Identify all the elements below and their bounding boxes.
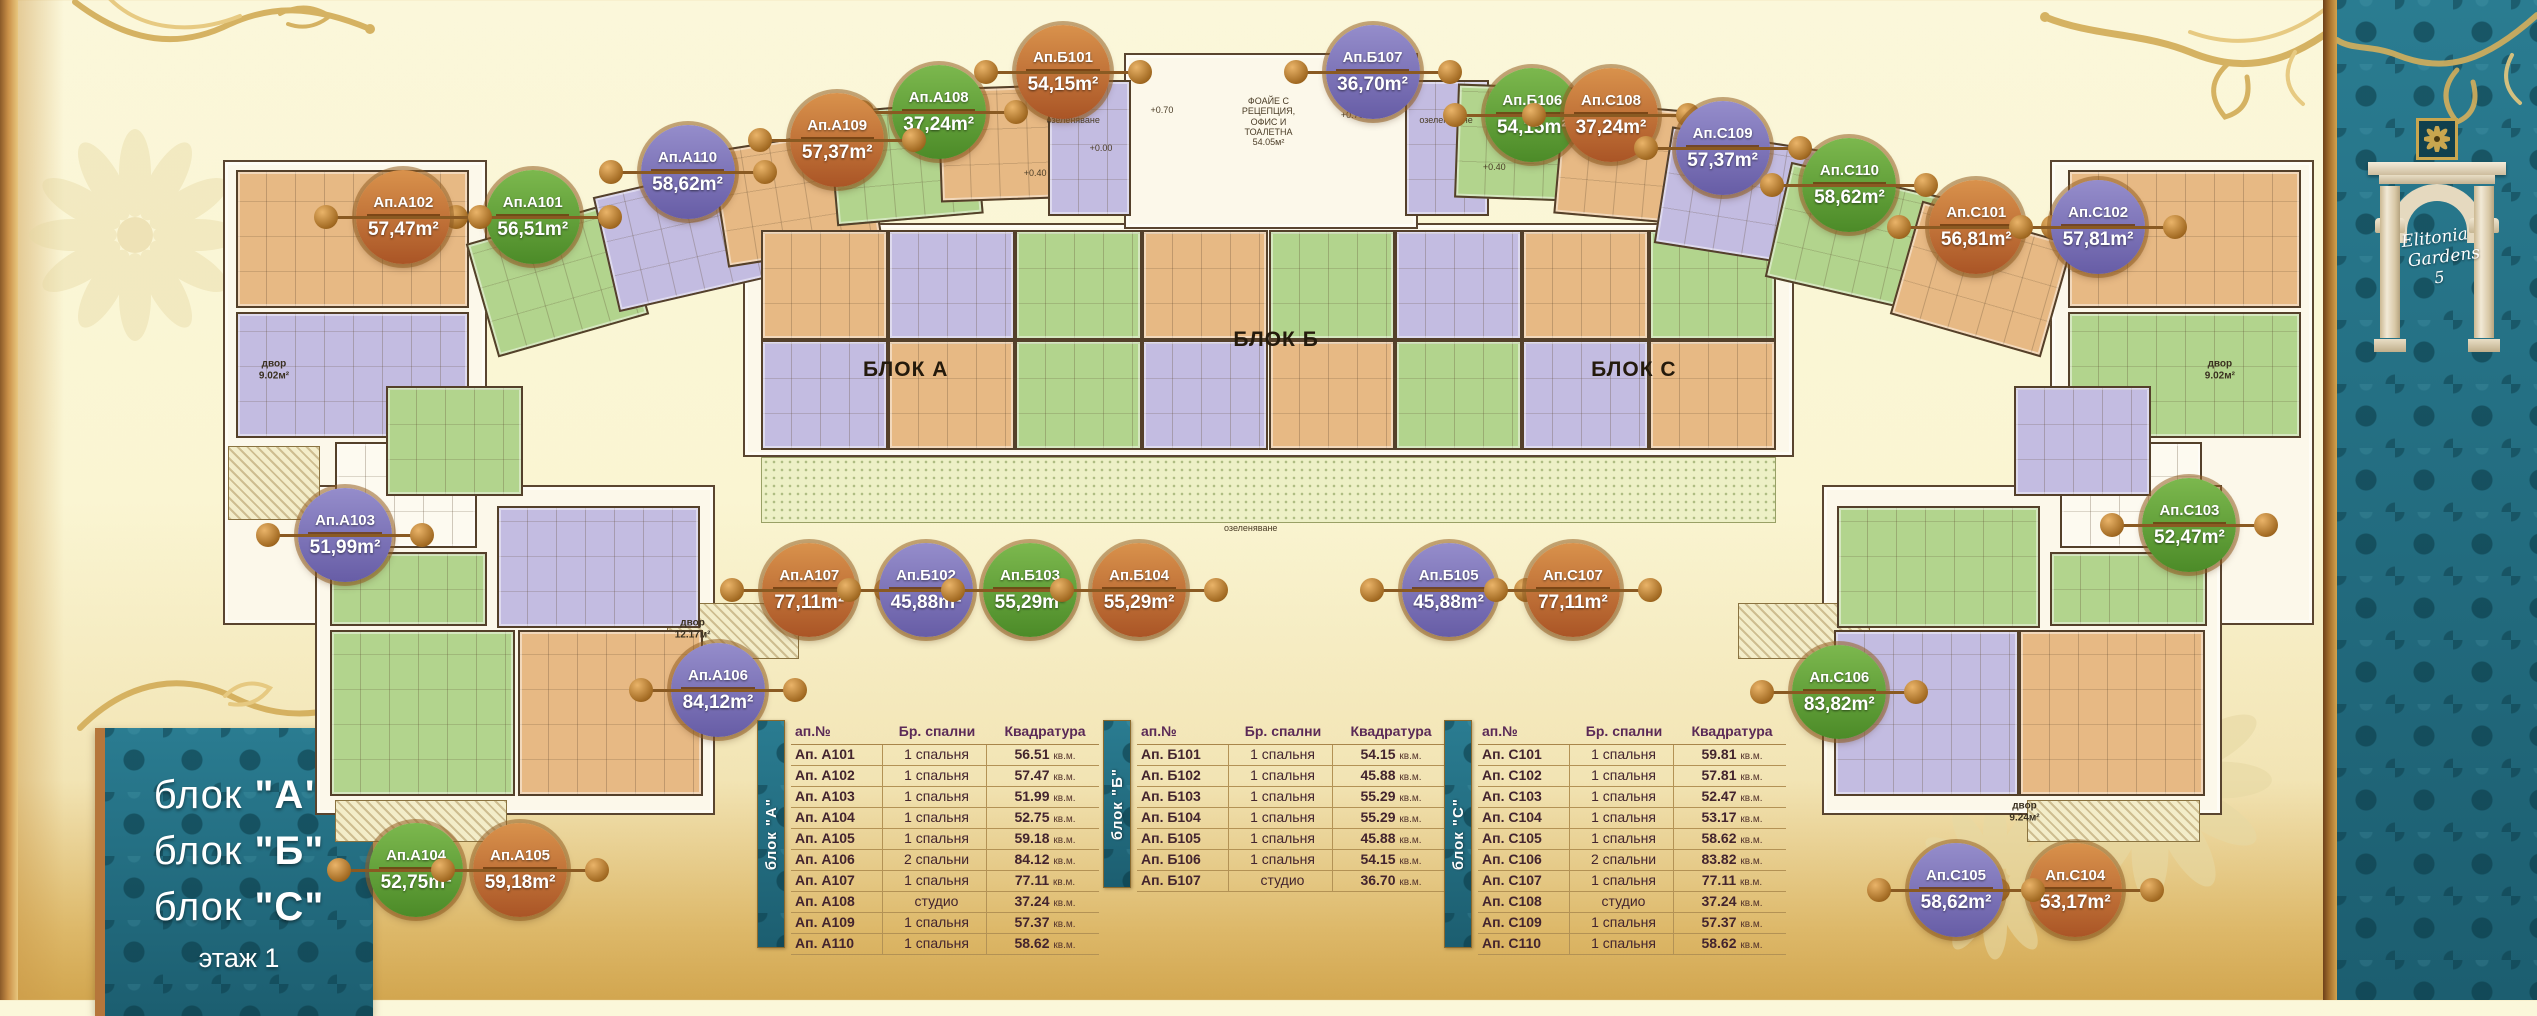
apartment-unit [1522,340,1649,450]
badge-knob-icon [1128,60,1152,84]
table-header: Квадратура [1333,720,1445,745]
table-strip: блок "А" [757,720,785,948]
apartment-badge[interactable]: Ап.Б10455,29m² [1092,543,1186,637]
area-number: 57.37 [1701,914,1740,930]
badge-divider [2153,522,2226,524]
apartment-table: ап.№Бр. спалниКвадратураАп. C1011 спальн… [1478,720,1786,955]
table-header: Бр. спални [1570,720,1674,745]
table-cell-bedrooms: 1 спальня [1229,808,1333,829]
table-cell-bedrooms: 1 спальня [883,871,987,892]
table-cell-bedrooms: 1 спальня [1229,745,1333,766]
table-cell-bedrooms: 1 спальня [1570,913,1674,934]
badge-apartment-area: 57,37m² [802,142,873,164]
area-unit: кв.м. [1399,856,1421,867]
badge-divider [496,214,569,216]
area-unit: кв.м. [1053,856,1075,867]
badge-divider [1686,145,1759,147]
table-cell-apartment: Ап. C102 [1478,766,1570,787]
badge-divider [1536,587,1609,589]
plan-label: +0.00 [1090,143,1113,153]
apartment-unit [518,630,703,796]
badge-apartment-number: Ап.C102 [2068,204,2128,221]
table-header: Бр. спални [883,720,987,745]
apartment-unit [888,230,1015,340]
badge-divider [801,137,874,139]
badge-apartment-area: 83,82m² [1804,694,1875,716]
badge-knob-icon [314,205,338,229]
plan-label: +0.40 [1024,168,1047,178]
table-cell-apartment: Ап. C109 [1478,913,1570,934]
apartment-unit [497,506,700,628]
table-cell-bedrooms: 1 спальня [1570,829,1674,850]
badge-knob-icon [585,858,609,882]
table-cell-apartment: Ап. C106 [1478,850,1570,871]
plan-label: +0.70 [1151,105,1174,115]
badge-apartment-number: Ап.А105 [490,847,550,864]
area-number: 53.17 [1701,809,1740,825]
area-number: 36.70 [1360,872,1399,888]
area-unit: кв.м. [1053,751,1075,762]
table-cell-apartment: Ап. А104 [791,808,883,829]
table-header: ап.№ [1137,720,1229,745]
badge-divider [2039,887,2112,889]
table-strip-label: блок "А" [763,798,780,870]
apartment-badge[interactable]: Ап.C10257,81m² [2051,180,2145,274]
apartment-unit [1269,230,1396,340]
badge-apartment-number: Ап.Б105 [1419,567,1479,584]
area-unit: кв.м. [1740,898,1762,909]
badge-apartment-number: Ап.А101 [503,194,563,211]
area-unit: кв.м. [1740,940,1762,951]
table-cell-bedrooms: 1 спальня [1229,766,1333,787]
badge-knob-icon [410,523,434,547]
badge-divider [902,109,975,111]
table-cell-bedrooms: 1 спальня [1570,934,1674,955]
badge-knob-icon [1204,578,1228,602]
badge-divider [2061,224,2134,226]
area-number: 45.88 [1360,767,1399,783]
badge-apartment-area: 57,47m² [368,219,439,241]
badge-knob-icon [1867,878,1891,902]
badge-knob-icon [468,205,492,229]
badge-knob-icon [753,160,777,184]
badge-apartment-number: Ап.А103 [315,512,375,529]
badge-knob-icon [327,858,351,882]
apartment-unit [888,340,1015,450]
badge-divider [1026,69,1099,71]
badge-knob-icon [598,205,622,229]
badge-knob-icon [1887,215,1911,239]
badge-apartment-number: Ап.C107 [1543,567,1603,584]
area-number: 83.82 [1701,851,1740,867]
badge-apartment-number: Ап.C104 [2045,867,2105,884]
area-number: 51.99 [1014,788,1053,804]
badge-knob-icon [1788,136,1812,160]
apartment-unit [761,230,888,340]
badge-apartment-area: 57,37m² [1687,150,1758,172]
table-cell-bedrooms: студио [1570,892,1674,913]
area-number: 55.29 [1360,809,1399,825]
badge-divider [1803,689,1876,691]
apartment-badge[interactable]: Ап.Б10736,70m² [1326,25,1420,119]
area-number: 37.24 [1701,893,1740,909]
apartment-unit [1269,340,1396,450]
badge-apartment-area: 51,99m² [310,537,381,559]
right-panel-separator [2323,0,2337,1000]
badge-divider [681,687,754,689]
flower-emblem-icon [2416,118,2458,160]
table-cell-area: 55.29 кв.м. [1333,787,1445,808]
badge-divider [1336,69,1409,71]
apartment-unit [1649,340,1776,450]
badge-knob-icon [1438,60,1462,84]
apartment-badge[interactable]: Ап.А10156,51m² [486,170,580,264]
badge-apartment-number: Ап.C103 [2159,502,2219,519]
badge-knob-icon [783,678,807,702]
area-unit: кв.м. [1053,835,1075,846]
badge-divider [483,867,556,869]
area-number: 58.62 [1701,935,1740,951]
badge-apartment-area: 59,18m² [485,872,556,894]
area-unit: кв.м. [1053,898,1075,909]
apartment-unit [330,630,515,796]
table-cell-apartment: Ап. C101 [1478,745,1570,766]
badge-apartment-area: 36,70m² [1337,74,1408,96]
apartment-unit [1015,340,1142,450]
table-cell-apartment: Ап. А101 [791,745,883,766]
badge-apartment-number: Ап.А106 [688,667,748,684]
apartment-unit [2014,386,2151,496]
table-strip: блок "С" [1444,720,1472,948]
badge-apartment-number: Ап.Б107 [1343,49,1403,66]
table-cell-bedrooms: 1 спальня [1229,850,1333,871]
table-cell-area: 77.11 кв.м. [1674,871,1786,892]
badge-divider [1574,112,1647,114]
table-cell-bedrooms: студио [883,892,987,913]
badge-apartment-area: 56,81m² [1941,229,2012,251]
floor-label: этаж 1 [105,943,373,974]
badge-divider [1919,887,1992,889]
badge-knob-icon [1484,578,1508,602]
table-header: Квадратура [987,720,1099,745]
plan-label: БЛОК А [863,358,948,382]
badge-apartment-area: 58,62m² [652,174,723,196]
badge-divider [1813,182,1886,184]
apartment-badge[interactable]: Ап.А10684,12m² [671,643,765,737]
table-cell-apartment: Ап. C107 [1478,871,1570,892]
table-cell-area: 58.62 кв.м. [1674,934,1786,955]
area-number: 52.75 [1014,809,1053,825]
badge-apartment-number: Ап.А109 [807,117,867,134]
area-unit: кв.м. [1740,877,1762,888]
badge-divider [1102,587,1175,589]
apartment-badge[interactable]: Ап.А10559,18m² [473,823,567,917]
badge-knob-icon [629,678,653,702]
badge-knob-icon [974,60,998,84]
badge-apartment-area: 55,29m² [1104,592,1175,614]
badge-knob-icon [1750,680,1774,704]
badge-knob-icon [2100,513,2124,537]
apartment-unit [1142,340,1269,450]
table-cell-bedrooms: 1 спальня [883,913,987,934]
apartment-unit [1522,230,1649,340]
table-cell-apartment: Ап. Б104 [1137,808,1229,829]
badge-divider [1412,587,1485,589]
area-number: 58.62 [1014,935,1053,951]
table-cell-apartment: Ап. А103 [791,787,883,808]
area-unit: кв.м. [1053,877,1075,888]
apartment-unit [2019,630,2204,796]
badge-knob-icon [431,858,455,882]
badge-knob-icon [1360,578,1384,602]
badge-apartment-area: 84,12m² [683,692,754,714]
area-unit: кв.м. [1740,835,1762,846]
table-cell-apartment: Ап. А107 [791,871,883,892]
table-cell-area: 36.70 кв.м. [1333,871,1445,892]
area-number: 59.18 [1014,830,1053,846]
area-number: 52.47 [1701,788,1740,804]
badge-apartment-number: Ап.C110 [1820,162,1879,179]
badge-knob-icon [941,578,965,602]
table-cell-area: 37.24 кв.м. [1674,892,1786,913]
brand-panel: Elitonia Gardens 5 [2337,0,2537,1000]
badge-apartment-number: Ап.А108 [909,89,969,106]
table-cell-bedrooms: 1 спальня [1229,829,1333,850]
badge-knob-icon [720,578,744,602]
table-cell-apartment: Ап. C104 [1478,808,1570,829]
apartment-badge[interactable]: Ап.А11058,62m² [641,125,735,219]
badge-apartment-area: 53,17m² [2040,892,2111,914]
table-cell-apartment: Ап. Б103 [1137,787,1229,808]
badge-knob-icon [599,160,623,184]
table-cell-area: 83.82 кв.м. [1674,850,1786,871]
table-cell-bedrooms: 1 спальня [883,787,987,808]
table-cell-area: 57.37 кв.м. [1674,913,1786,934]
badge-knob-icon [2021,878,2045,902]
area-unit: кв.м. [1740,793,1762,804]
apartment-unit [1837,506,2040,628]
table-cell-bedrooms: 2 спальни [1570,850,1674,871]
courtyard-hatch [2027,800,2200,842]
area-number: 45.88 [1360,830,1399,846]
area-number: 57.37 [1014,914,1053,930]
area-number: 84.12 [1014,851,1053,867]
table-cell-bedrooms: 1 спальня [1570,745,1674,766]
apartment-badge[interactable]: Ап.C10683,82m² [1792,645,1886,739]
area-number: 54.15 [1360,746,1399,762]
table-cell-apartment: Ап. А108 [791,892,883,913]
apartment-unit [761,340,888,450]
badge-apartment-number: Ап.Б103 [1000,567,1060,584]
table-cell-apartment: Ап. Б101 [1137,745,1229,766]
area-number: 59.81 [1701,746,1740,762]
badge-knob-icon [2254,513,2278,537]
table-cell-area: 51.99 кв.м. [987,787,1099,808]
badge-knob-icon [1634,136,1658,160]
plan-label: озеленяване [1224,523,1277,533]
table-cell-apartment: Ап. А109 [791,913,883,934]
table-cell-bedrooms: 1 спальня [883,766,987,787]
table-cell-apartment: Ап. Б107 [1137,871,1229,892]
apartment-table: ап.№Бр. спалниКвадратураАп. Б1011 спальн… [1137,720,1445,892]
badge-knob-icon [2163,215,2187,239]
table-cell-area: 57.37 кв.м. [987,913,1099,934]
apartment-badge[interactable]: Ап.C10777,11m² [1526,543,1620,637]
title-block-c: блок "С" [105,879,373,935]
badge-apartment-number: Ап.А110 [658,149,717,166]
badge-divider [308,532,381,534]
table-strip: блок "Б" [1103,720,1131,888]
badge-apartment-area: 57,81m² [2063,229,2134,251]
table-cell-bedrooms: 1 спальня [1570,787,1674,808]
badge-knob-icon [1284,60,1308,84]
badge-knob-icon [2140,878,2164,902]
badge-knob-icon [902,128,926,152]
area-unit: кв.м. [1053,772,1075,783]
table-cell-area: 58.62 кв.м. [1674,829,1786,850]
plan-label: ФОАЙЕ С РЕЦЕПЦИЯ, ОФИС И ТОАЛЕТНА 54.05м… [1242,96,1295,148]
table-cell-bedrooms: 1 спальня [1570,808,1674,829]
column-arch-graphic: Elitonia Gardens 5 [2368,162,2506,352]
apartment-table-block-A: блок "А"ап.№Бр. спалниКвадратураАп. А101… [757,720,1099,955]
table-strip-label: блок "Б" [1109,768,1126,840]
apartment-badge[interactable]: Ап.А10257,47m² [356,170,450,264]
courtyard-hatch [761,457,1776,523]
table-cell-apartment: Ап. Б105 [1137,829,1229,850]
table-cell-bedrooms: 1 спальня [1570,766,1674,787]
apartment-badge[interactable]: Ап.А10957,37m² [790,93,884,187]
badge-apartment-area: 77,11m² [774,592,844,614]
area-unit: кв.м. [1399,877,1421,888]
area-number: 54.15 [1360,851,1399,867]
apartment-table-block-B: блок "Б"ап.№Бр. спалниКвадратураАп. Б101… [1103,720,1445,892]
badge-apartment-number: Ап.C108 [1581,92,1641,109]
badge-knob-icon [1904,680,1928,704]
table-cell-bedrooms: студио [1229,871,1333,892]
apartment-table: ап.№Бр. спалниКвадратураАп. А1011 спальн… [791,720,1099,955]
area-unit: кв.м. [1053,793,1075,804]
apartment-badge[interactable]: Ап.Б10154,15m² [1016,25,1110,119]
area-number: 56.51 [1014,746,1053,762]
badge-apartment-area: 45,88m² [1413,592,1484,614]
apartment-badge[interactable]: Ап.C10558,62m² [1909,843,2003,937]
area-unit: кв.м. [1740,919,1762,930]
badge-divider [773,587,846,589]
badge-apartment-area: 77,11m² [1538,592,1608,614]
brochure-canvas: БЛОК АБЛОК ББЛОК СФОАЙЕ С РЕЦЕПЦИЯ, ОФИС… [0,0,2537,1000]
plan-label: +0.40 [1483,162,1506,172]
table-cell-bedrooms: 1 спальня [883,829,987,850]
badge-apartment-number: Ап.Б101 [1033,49,1093,66]
area-unit: кв.м. [1740,751,1762,762]
badge-apartment-number: Ап.C101 [1946,204,2006,221]
table-cell-apartment: Ап. А110 [791,934,883,955]
area-number: 55.29 [1360,788,1399,804]
table-cell-bedrooms: 1 спальня [883,808,987,829]
apartment-unit [1395,230,1522,340]
plan-label: двор 12.17м² [675,618,711,641]
table-cell-area: 58.62 кв.м. [987,934,1099,955]
badge-knob-icon [2009,215,2033,239]
badge-apartment-number: Ап.А107 [779,567,839,584]
area-number: 37.24 [1014,893,1053,909]
table-cell-apartment: Ап. Б106 [1137,850,1229,871]
apartment-badge[interactable]: Ап.C10352,47m² [2142,478,2236,572]
table-strip-label: блок "С" [1450,798,1467,870]
apartment-unit [1142,230,1269,340]
table-cell-area: 45.88 кв.м. [1333,829,1445,850]
area-unit: кв.м. [1053,940,1075,951]
table-cell-area: 56.51 кв.м. [987,745,1099,766]
apartment-badge[interactable]: Ап.А10351,99m² [298,488,392,582]
plan-label: двор 9.24м² [2009,801,2039,824]
table-cell-area: 54.15 кв.м. [1333,850,1445,871]
area-unit: кв.м. [1399,772,1421,783]
badge-divider [1940,224,2013,226]
badge-knob-icon [837,578,861,602]
area-unit: кв.м. [1399,793,1421,804]
table-header: ап.№ [1478,720,1570,745]
apartment-badge[interactable]: Ап.C10957,37m² [1676,101,1770,195]
table-cell-bedrooms: 2 спальни [883,850,987,871]
plan-label: двор 9.02м² [259,359,289,382]
badge-divider [651,169,724,171]
badge-knob-icon [256,523,280,547]
badge-apartment-area: 58,62m² [1921,892,1992,914]
table-cell-area: 77.11 кв.м. [987,871,1099,892]
table-cell-apartment: Ап. А105 [791,829,883,850]
table-cell-area: 57.47 кв.м. [987,766,1099,787]
badge-knob-icon [1760,173,1784,197]
table-cell-bedrooms: 1 спальня [883,934,987,955]
apartment-unit [1015,230,1142,340]
badge-knob-icon [1443,103,1467,127]
area-unit: кв.м. [1399,814,1421,825]
table-cell-apartment: Ап. А106 [791,850,883,871]
apartment-table-block-C: блок "С"ап.№Бр. спалниКвадратураАп. C101… [1444,720,1786,955]
area-unit: кв.м. [1399,835,1421,846]
area-unit: кв.м. [1740,814,1762,825]
apartment-unit [1395,340,1522,450]
table-cell-area: 52.47 кв.м. [1674,787,1786,808]
apartment-unit [386,386,523,496]
area-number: 77.11 [1015,872,1053,888]
table-cell-bedrooms: 1 спальня [883,745,987,766]
plan-label: БЛОК Б [1233,328,1318,352]
area-number: 77.11 [1702,872,1740,888]
table-cell-area: 37.24 кв.м. [987,892,1099,913]
area-number: 57.47 [1014,767,1053,783]
badge-apartment-number: Ап.А102 [373,194,433,211]
badge-knob-icon [1522,103,1546,127]
table-cell-area: 45.88 кв.м. [1333,766,1445,787]
table-cell-area: 84.12 кв.м. [987,850,1099,871]
table-cell-area: 57.81 кв.м. [1674,766,1786,787]
apartment-badge[interactable]: Ап.C11058,62m² [1802,138,1896,232]
plan-label: двор 9.02м² [2205,359,2235,382]
area-unit: кв.м. [1053,814,1075,825]
badge-apartment-area: 56,51m² [497,219,568,241]
table-cell-bedrooms: 1 спальня [1229,787,1333,808]
badge-apartment-area: 52,47m² [2154,527,2225,549]
table-cell-area: 54.15 кв.м. [1333,745,1445,766]
plan-label: БЛОК С [1591,358,1676,382]
area-number: 58.62 [1701,830,1740,846]
area-unit: кв.м. [1399,751,1421,762]
apartment-badge[interactable]: Ап.Б10545,88m² [1402,543,1496,637]
table-cell-bedrooms: 1 спальня [1570,871,1674,892]
area-unit: кв.м. [1053,919,1075,930]
